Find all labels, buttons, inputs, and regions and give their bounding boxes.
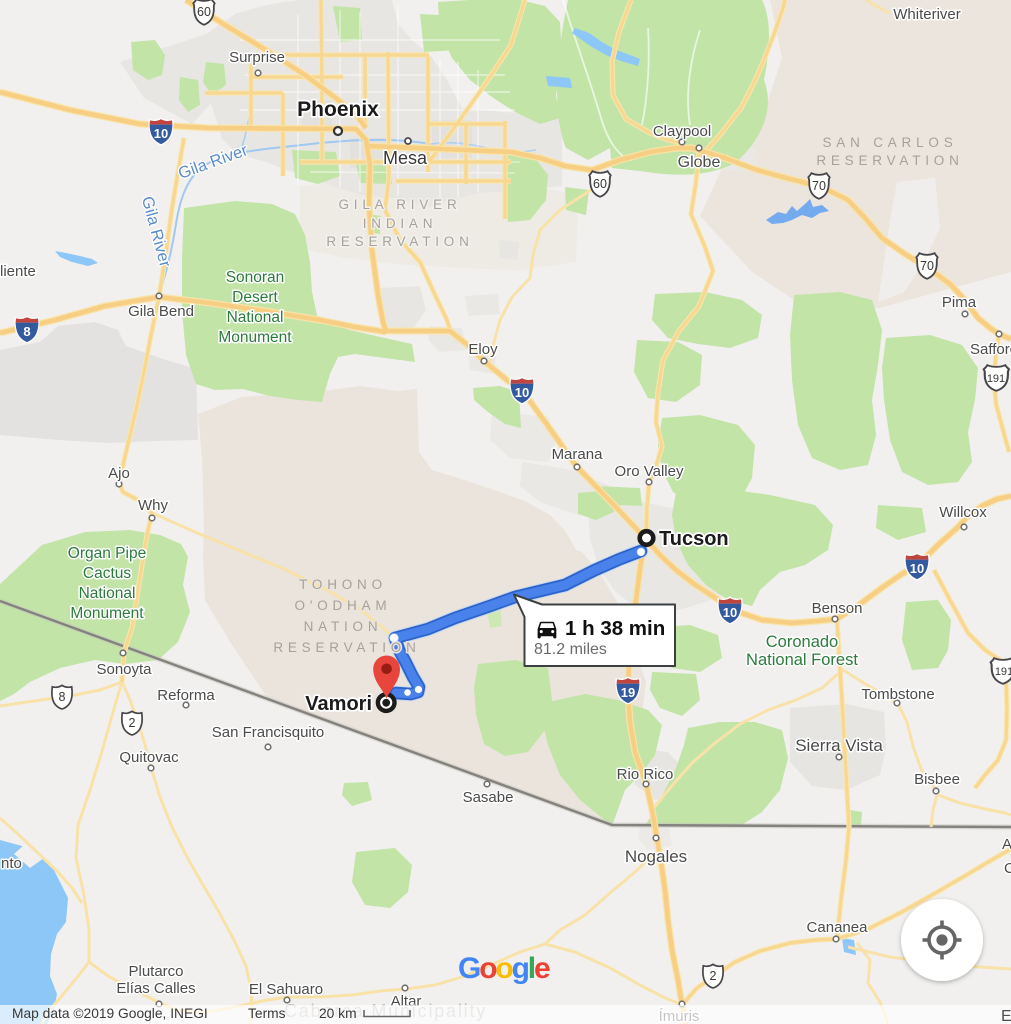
svg-text:liente: liente — [0, 263, 36, 280]
svg-text:19: 19 — [621, 685, 635, 700]
svg-text:RESERVATION: RESERVATION — [326, 234, 473, 249]
svg-text:National Forest: National Forest — [746, 651, 858, 669]
svg-text:2: 2 — [129, 716, 136, 730]
svg-text:SAN CARLOS: SAN CARLOS — [822, 135, 957, 150]
svg-text:Monument: Monument — [218, 329, 292, 346]
svg-text:Cananea: Cananea — [807, 919, 869, 936]
svg-text:Quitovac: Quitovac — [119, 749, 179, 766]
svg-text:Sonoran: Sonoran — [226, 269, 285, 286]
svg-text:60: 60 — [197, 5, 211, 19]
svg-text:nto: nto — [1, 855, 22, 872]
svg-text:Safford: Safford — [970, 341, 1011, 358]
svg-text:Mesa: Mesa — [383, 148, 428, 168]
svg-text:10: 10 — [515, 385, 529, 400]
svg-text:Bisbee: Bisbee — [914, 771, 960, 788]
svg-text:Plutarco: Plutarco — [128, 963, 183, 980]
svg-text:Sasabe: Sasabe — [463, 789, 514, 806]
svg-text:Marana: Marana — [552, 446, 604, 463]
svg-text:Elías Calles: Elías Calles — [116, 980, 195, 997]
svg-text:NATION: NATION — [304, 619, 383, 634]
svg-text:Gila Bend: Gila Bend — [128, 303, 194, 320]
svg-text:60: 60 — [593, 177, 607, 191]
svg-text:e: e — [534, 952, 551, 985]
svg-text:National: National — [79, 585, 136, 602]
svg-text:Map data ©2019 Google, INEGI: Map data ©2019 Google, INEGI — [12, 1006, 208, 1021]
svg-text:TOHONO: TOHONO — [299, 577, 387, 592]
svg-text:San Francisquito: San Francisquito — [212, 724, 325, 741]
svg-text:Agu: Agu — [1002, 836, 1011, 853]
svg-text:Sonoyta: Sonoyta — [96, 661, 152, 678]
svg-text:Surprise: Surprise — [229, 49, 285, 66]
svg-text:Benson: Benson — [812, 600, 863, 617]
svg-text:Sierra Vista: Sierra Vista — [795, 736, 883, 755]
svg-text:Willcox: Willcox — [939, 504, 987, 521]
svg-text:70: 70 — [812, 179, 826, 193]
svg-text:Claypool: Claypool — [653, 123, 711, 140]
svg-text:8: 8 — [59, 690, 66, 704]
svg-text:Organ Pipe: Organ Pipe — [68, 545, 146, 562]
svg-text:Cactus: Cactus — [83, 565, 131, 582]
svg-text:Desert: Desert — [232, 289, 278, 306]
svg-text:Reforma: Reforma — [157, 687, 215, 704]
svg-text:70: 70 — [920, 259, 934, 273]
svg-text:2: 2 — [710, 969, 717, 983]
svg-text:10: 10 — [723, 605, 737, 620]
svg-text:Ajo: Ajo — [108, 465, 130, 482]
svg-text:Why: Why — [138, 497, 169, 514]
svg-text:Monument: Monument — [70, 605, 144, 622]
svg-text:191: 191 — [995, 666, 1011, 678]
svg-text:GILA RIVER: GILA RIVER — [338, 197, 461, 212]
svg-text:El Sahuaro: El Sahuaro — [249, 981, 323, 998]
svg-text:Nogales: Nogales — [625, 847, 687, 866]
svg-text:RESERVATION: RESERVATION — [816, 153, 963, 168]
svg-text:10: 10 — [910, 561, 924, 576]
svg-text:Globe: Globe — [678, 154, 721, 171]
svg-text:Pima: Pima — [942, 294, 977, 311]
svg-text:Phoenix: Phoenix — [297, 98, 379, 121]
svg-text:Whiteriver: Whiteriver — [893, 6, 961, 23]
svg-text:National: National — [227, 309, 284, 326]
svg-text:10: 10 — [154, 126, 168, 141]
svg-text:1 h 38 min: 1 h 38 min — [565, 617, 665, 640]
svg-text:191: 191 — [987, 373, 1005, 385]
svg-text:Rio Rico: Rio Rico — [617, 766, 674, 783]
svg-text:81.2 miles: 81.2 miles — [534, 641, 607, 658]
svg-text:Tombstone: Tombstone — [861, 686, 934, 703]
svg-text:Eloy: Eloy — [468, 341, 498, 358]
svg-text:8: 8 — [23, 324, 30, 339]
svg-text:20 km: 20 km — [319, 1006, 357, 1021]
svg-text:O'ODHAM: O'ODHAM — [295, 598, 392, 613]
svg-text:Tucson: Tucson — [659, 528, 729, 550]
svg-text:Vamori: Vamori — [305, 693, 372, 715]
svg-text:Can: Can — [1004, 860, 1011, 877]
svg-text:INDIAN: INDIAN — [363, 216, 438, 231]
svg-text:RESERVATION: RESERVATION — [273, 640, 420, 655]
svg-text:Terms: Terms — [248, 1006, 286, 1021]
svg-text:Oro Valley: Oro Valley — [615, 463, 684, 480]
svg-text:G: G — [458, 952, 481, 985]
svg-text:El: El — [1001, 1008, 1011, 1024]
svg-text:Coronado: Coronado — [766, 633, 838, 651]
